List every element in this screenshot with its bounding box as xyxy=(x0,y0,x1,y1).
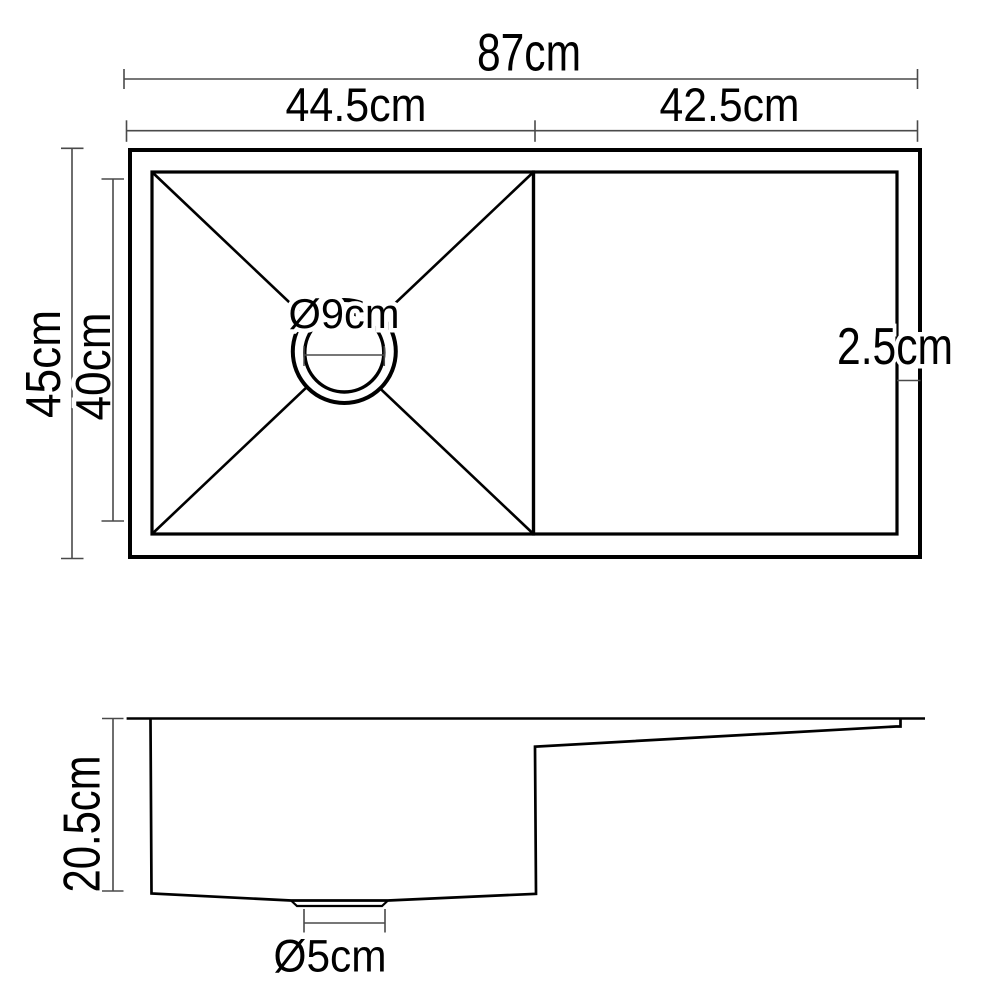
svg-text:20.5cm: 20.5cm xyxy=(54,756,112,893)
svg-text:44.5cm: 44.5cm xyxy=(286,78,427,131)
svg-text:87cm: 87cm xyxy=(477,24,581,83)
svg-text:Ø9cm: Ø9cm xyxy=(289,290,400,337)
svg-text:45cm: 45cm xyxy=(17,310,71,418)
svg-text:Ø5cm: Ø5cm xyxy=(274,931,387,982)
svg-text:42.5cm: 42.5cm xyxy=(660,78,800,131)
svg-text:2.5cm: 2.5cm xyxy=(837,318,953,376)
